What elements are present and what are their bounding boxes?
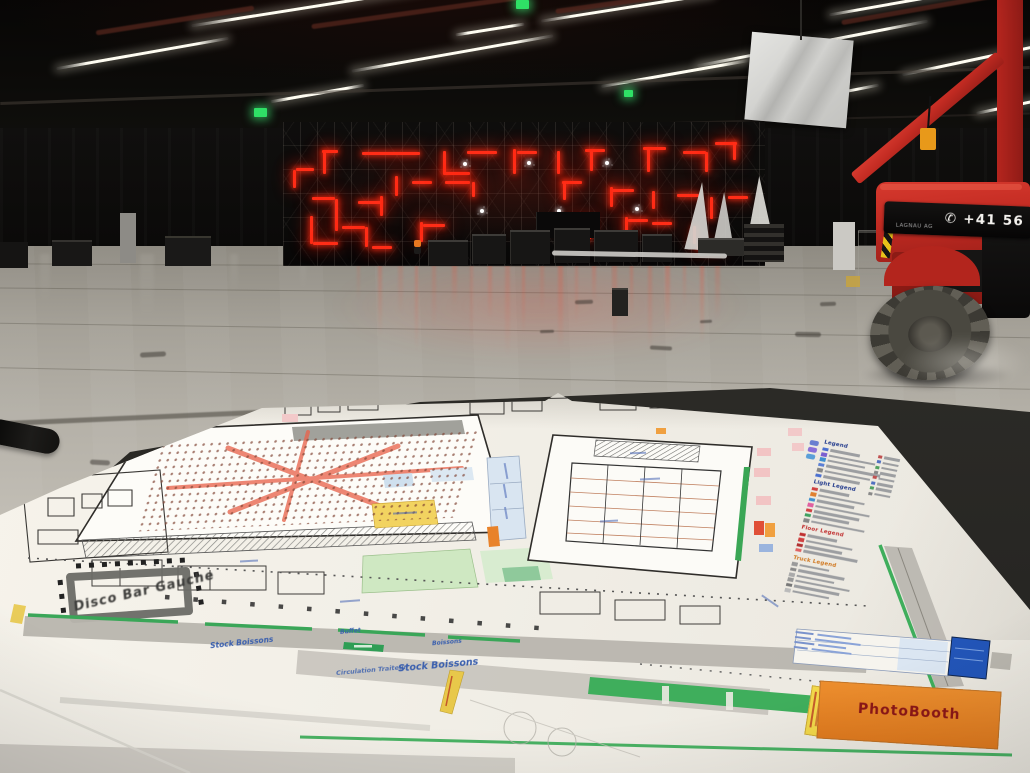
led-strip	[312, 197, 335, 200]
led-strip	[365, 227, 368, 247]
road-case	[594, 230, 638, 262]
led-strip	[683, 151, 706, 154]
dust-mist	[900, 336, 1030, 388]
led-strip	[728, 196, 748, 199]
legend-swatch	[784, 588, 791, 593]
led-strip	[423, 224, 445, 227]
legend-swatch	[816, 468, 823, 473]
legend-swatch	[791, 562, 798, 567]
ceiling-light-tube	[455, 23, 525, 37]
led-strip	[652, 222, 672, 225]
floor-smudge	[140, 351, 166, 357]
equipment-cart	[52, 240, 92, 266]
led-strip	[412, 181, 432, 184]
led-strip	[733, 142, 736, 160]
legend-swatch	[872, 476, 877, 480]
red-reflection-wash	[330, 250, 750, 362]
legend-swatch	[878, 455, 883, 459]
legend-swatch	[788, 572, 795, 577]
led-strip	[296, 168, 314, 171]
led-strip	[335, 199, 338, 231]
stage-light-sparkle	[480, 209, 484, 213]
led-strip	[590, 151, 593, 171]
led-strip	[395, 176, 398, 196]
led-strip	[443, 172, 470, 175]
screen-rigging-cable	[800, 0, 802, 40]
led-strip	[293, 170, 296, 188]
legend-swatch	[868, 492, 873, 496]
led-strip	[467, 151, 497, 154]
led-strip	[310, 216, 313, 244]
white-light-reflection	[140, 254, 154, 320]
legend-swatch	[815, 473, 822, 478]
legend-swatch	[809, 497, 816, 502]
scene-photo: LAGNAU AG ✆ +41 56	[0, 0, 1030, 773]
led-strip	[445, 181, 470, 184]
photobooth-label: PhotoBooth	[818, 698, 1001, 725]
gray-panel	[120, 213, 136, 263]
legend-swatch	[798, 537, 805, 542]
led-strip	[677, 194, 699, 197]
legend-blob-icon	[809, 440, 819, 447]
exit-sign-icon	[516, 0, 529, 9]
photobooth-zone: PhotoBooth	[816, 680, 1001, 749]
legend-swatch	[806, 508, 813, 513]
led-strip	[652, 191, 655, 209]
rental-brand-text: LAGNAU AG	[896, 223, 933, 230]
road-case	[472, 234, 506, 264]
projection-screen	[744, 32, 853, 129]
legend-swatch	[799, 532, 806, 537]
hoist-pulley	[920, 128, 936, 150]
led-strip	[563, 182, 566, 200]
stage-stairs	[744, 224, 784, 262]
floor-case	[612, 288, 628, 316]
legend-swatch	[810, 492, 817, 497]
phone-number: ✆ +41 56	[945, 210, 1025, 229]
led-strip	[705, 152, 708, 172]
legend-swatch	[819, 457, 826, 462]
led-strip	[710, 197, 713, 219]
road-case	[510, 230, 550, 264]
legend-swatch	[871, 481, 876, 485]
led-strip	[313, 242, 338, 245]
ceiling-light-tube	[56, 37, 229, 70]
stage-light-sparkle	[527, 161, 531, 165]
legend-swatch	[790, 567, 797, 572]
floor-smudge	[820, 302, 836, 307]
led-strip	[342, 226, 365, 229]
led-strip	[380, 196, 383, 216]
road-case	[554, 228, 590, 263]
legend-swatch	[818, 463, 825, 468]
ceiling-light-tube	[351, 34, 553, 73]
led-strip	[362, 152, 420, 155]
legend-swatch	[795, 548, 802, 553]
legend-swatch	[786, 583, 793, 588]
stage-light-sparkle	[635, 207, 639, 211]
led-strip	[557, 151, 560, 174]
led-strip	[517, 151, 537, 154]
equipment-cart	[0, 242, 28, 268]
equipment-cart	[165, 236, 211, 266]
exit-sign-icon	[254, 108, 267, 117]
legend-text-bar	[874, 493, 890, 498]
floor-smudge	[90, 459, 110, 465]
rental-banner: LAGNAU AG ✆ +41 56	[883, 201, 1030, 239]
worker-orange-vest	[414, 240, 421, 247]
legend-swatch	[821, 452, 828, 457]
floor-smudge	[575, 300, 593, 305]
phone-icon: ✆	[945, 210, 958, 226]
exit-sign-icon	[624, 90, 633, 97]
legend-swatch	[822, 447, 829, 452]
legend-swatch	[811, 487, 818, 492]
seating-rows-dots	[138, 430, 480, 531]
screen-shadow	[744, 32, 853, 129]
led-strip	[612, 189, 634, 192]
legend-swatch	[787, 578, 794, 583]
legend-swatch	[874, 471, 879, 475]
legend-blob-icon	[807, 447, 817, 454]
legend-swatch	[807, 503, 814, 508]
floor-smudge	[540, 330, 554, 333]
floor-smudge	[795, 332, 821, 337]
legend-swatch	[869, 486, 874, 490]
legend-swatch	[796, 543, 803, 548]
white-sign	[833, 222, 855, 270]
ceiling-light-tube	[601, 59, 749, 88]
led-strip	[443, 151, 446, 174]
led-strip	[628, 219, 648, 222]
stage-light-sparkle	[605, 161, 609, 165]
white-light-reflection	[40, 254, 50, 304]
legend-blob-icon	[806, 453, 816, 460]
led-strip	[585, 149, 605, 152]
legend-swatch	[875, 465, 880, 469]
legend-swatch	[804, 513, 811, 518]
led-strip	[372, 246, 392, 249]
yellow-crate	[846, 276, 860, 287]
titleblock-field-bar	[794, 645, 808, 649]
stage-light-sparkle	[463, 162, 467, 166]
led-strip	[472, 182, 475, 197]
legend-swatch	[876, 460, 881, 464]
road-case	[428, 240, 468, 266]
led-strip	[323, 152, 326, 174]
floor-smudge	[700, 320, 712, 324]
led-strip	[647, 149, 650, 172]
legend-swatch	[803, 518, 810, 523]
body-highlight	[880, 184, 1022, 190]
led-strip	[358, 201, 381, 204]
white-light-reflection	[230, 254, 238, 294]
road-case	[642, 234, 672, 262]
led-strip	[513, 149, 516, 174]
